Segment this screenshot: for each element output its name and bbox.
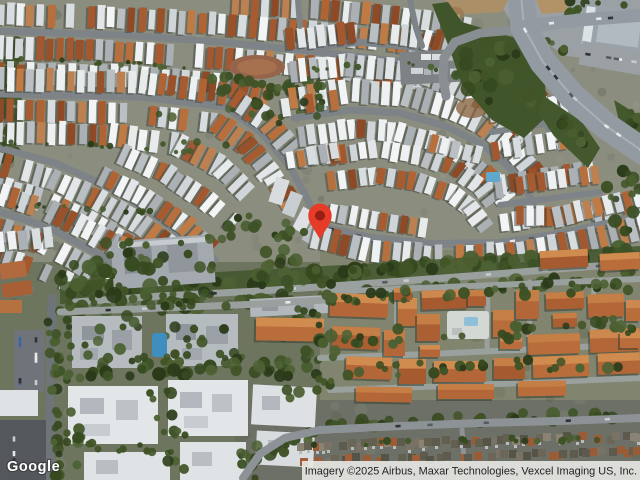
- svg-text:Google: Google: [7, 459, 60, 475]
- svg-text:Imagery ©2025 Airbus, Maxar Te: Imagery ©2025 Airbus, Maxar Technologies…: [305, 466, 637, 478]
